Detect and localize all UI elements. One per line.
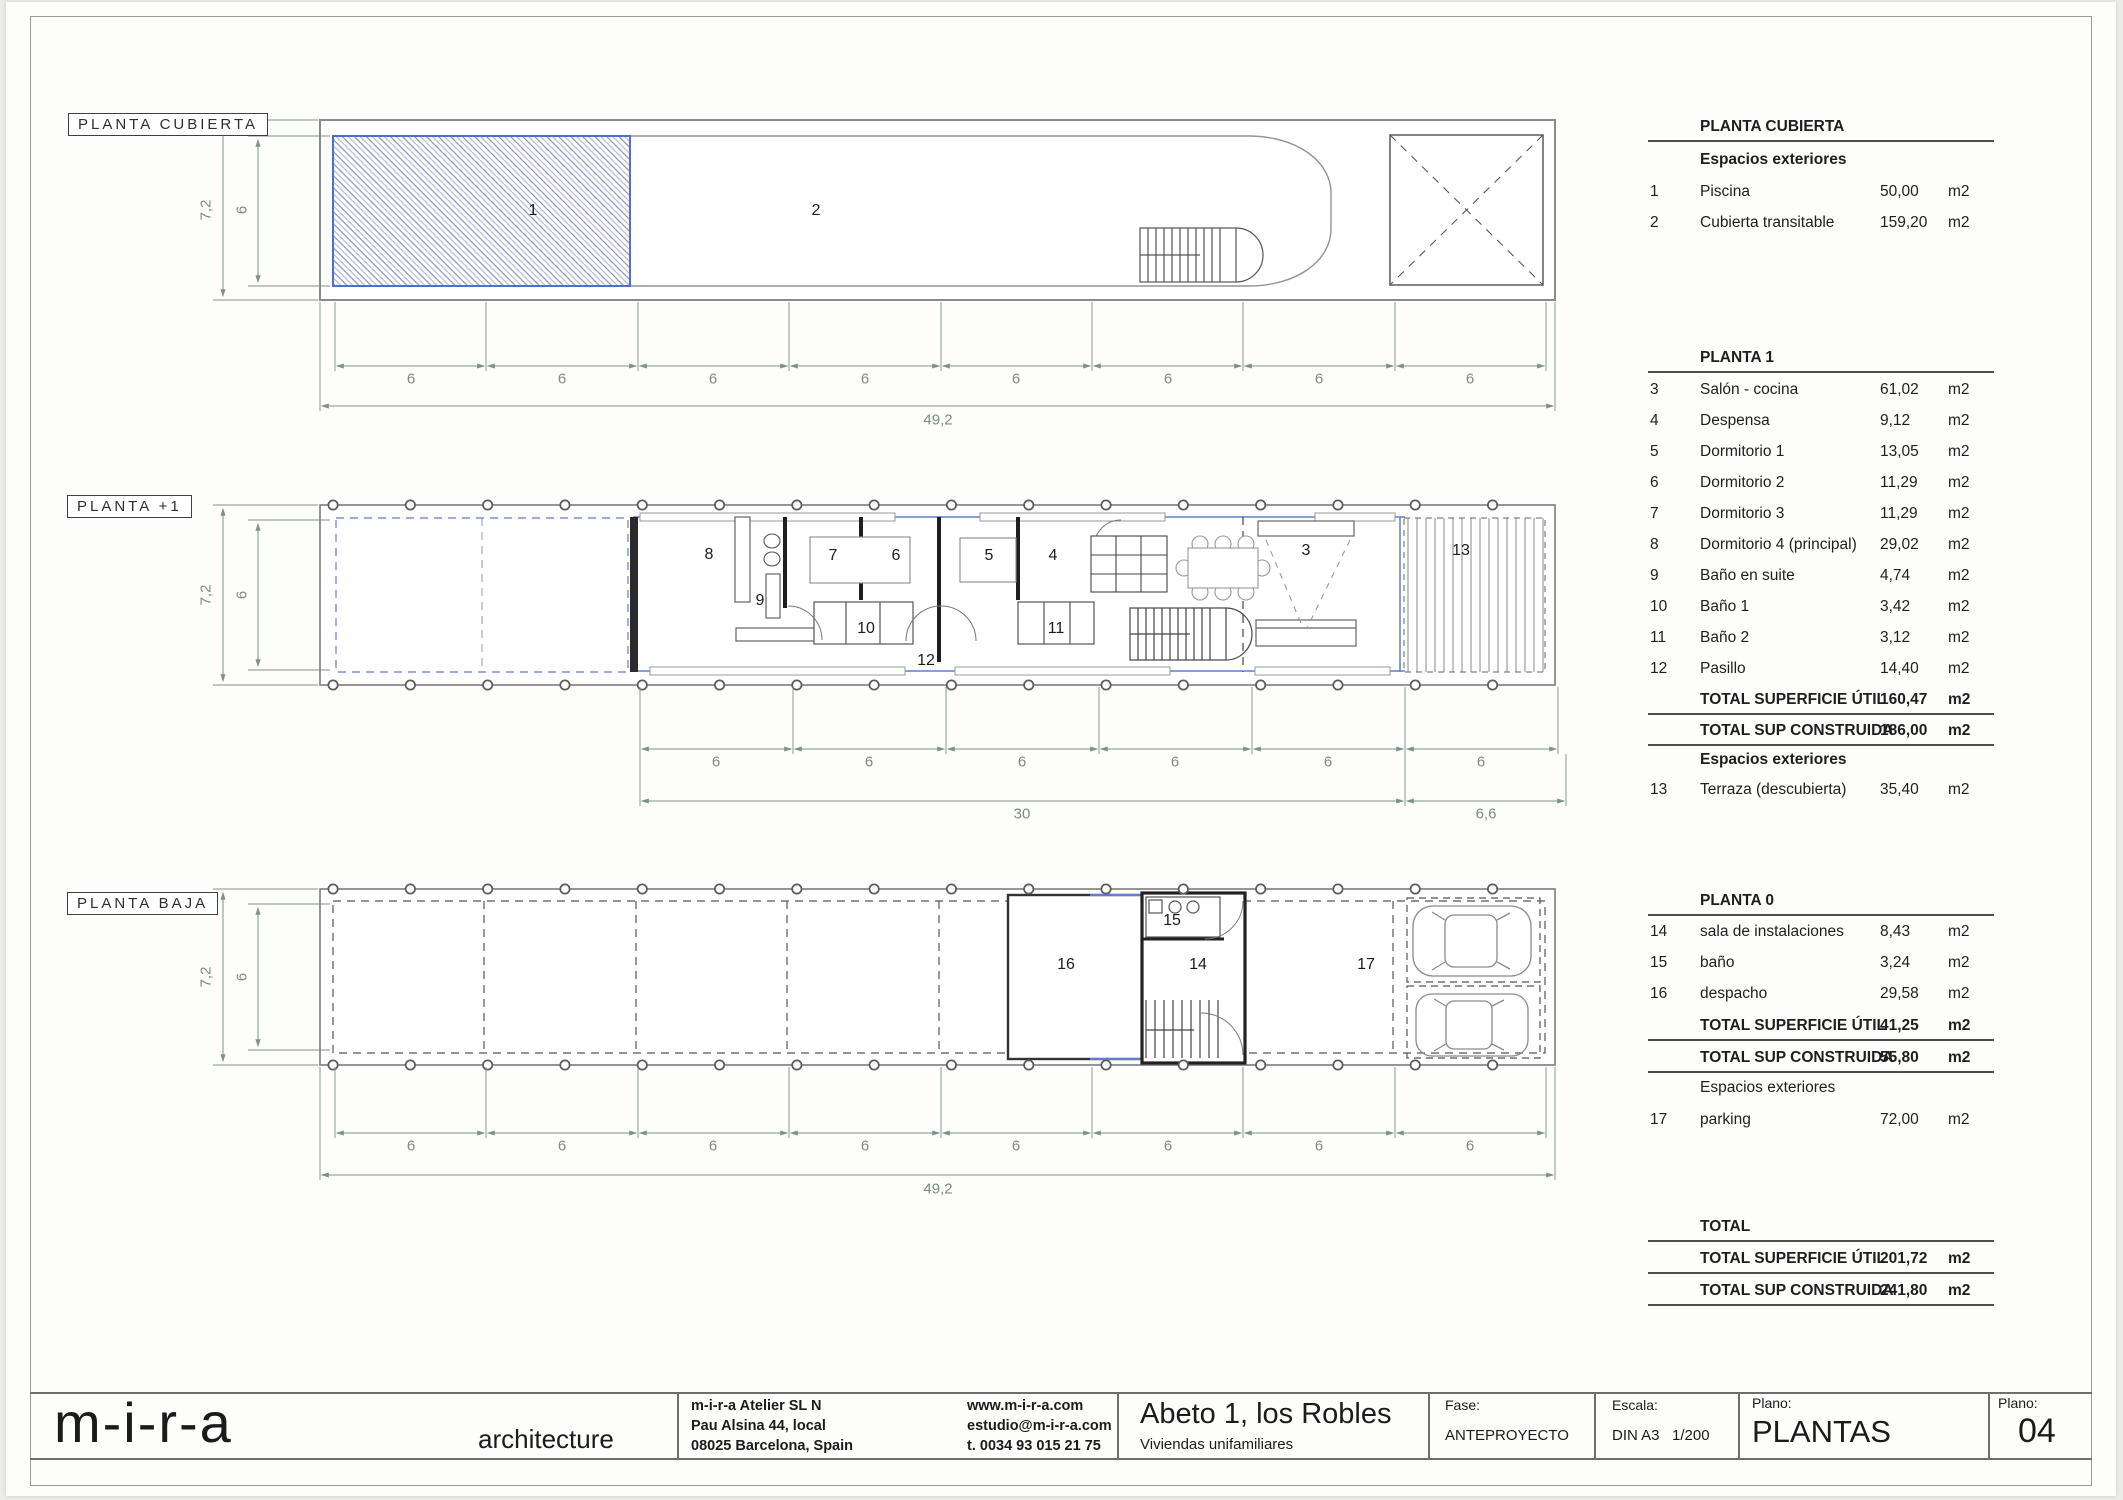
dim-label: 6 [1477,754,1485,771]
total-value: 41,25 [1880,1017,1919,1035]
dim-label: 6 [234,206,251,214]
room-label-pool: 1 [529,202,538,220]
dim-label: 6 [1164,371,1172,388]
total-unit: m2 [1948,1282,1970,1300]
room-label: 7 [829,547,838,565]
dim-label: 6 [1324,754,1332,771]
row-unit: m2 [1948,1111,1970,1129]
row-area: 35,40 [1880,781,1919,799]
table-total-row: TOTAL SUP CONSTRUIDA 241,80 m2 [1648,1282,1994,1306]
row-num: 10 [1650,598,1667,616]
dim-total-label: 6,6 [1476,806,1497,823]
total-label: TOTAL SUP CONSTRUIDA [1700,1282,1893,1300]
total-unit: m2 [1948,1250,1970,1268]
dim-label: 7,2 [198,585,215,606]
room-label: 9 [756,592,765,610]
row-area: 3,42 [1880,598,1910,616]
row-num: 17 [1650,1111,1667,1129]
dim-label: 6 [861,371,869,388]
row-name: Dormitorio 4 (principal) [1700,536,1857,554]
row-num: 6 [1650,474,1659,492]
dim-total-label: 49,2 [923,1181,952,1198]
skylight-cross-icon [1390,135,1543,285]
table-title: PLANTA 1 [1700,349,1774,367]
dim-label: 6 [1171,754,1179,771]
dim-label: 6 [558,1138,566,1155]
row-area: 11,29 [1880,505,1918,523]
escala-label: Escala: [1612,1397,1658,1413]
row-unit: m2 [1948,923,1970,941]
row-unit: m2 [1948,443,1970,461]
row-unit: m2 [1948,381,1970,399]
table-header: PLANTA CUBIERTA [1648,118,1994,142]
titleblock-divider [1117,1392,1119,1458]
row-unit: m2 [1948,598,1970,616]
table-row: 4 Despensa 9,12 m2 [1648,412,1994,434]
table-row: 1 Piscina 50,00 m2 [1648,183,1994,205]
table-row: 16 despacho 29,58 m2 [1648,985,1994,1007]
room-label: 3 [1302,542,1311,560]
total-value: 241,80 [1880,1282,1927,1300]
row-unit: m2 [1948,985,1970,1003]
row-area: 61,02 [1880,381,1919,399]
dim-total-label: 30 [1014,806,1031,823]
dim-label: 6 [1012,371,1020,388]
titleblock-divider [1594,1392,1596,1458]
table-subheader: Espacios exteriores [1648,151,1994,173]
escala-value: DIN A3 1/200 [1612,1427,1710,1444]
total-value: 201,72 [1880,1250,1927,1268]
room-label: 4 [1049,547,1058,565]
dim-total-label: 49,2 [923,412,952,429]
row-area: 9,12 [1880,412,1910,430]
dim-label: 6 [558,371,566,388]
fase-value: ANTEPROYECTO [1445,1427,1569,1444]
table-subheader: Espacios exteriores [1648,751,1994,773]
row-name: Despensa [1700,412,1770,430]
row-area: 72,00 [1880,1111,1919,1129]
firm-logo: m-i-r-a [54,1390,233,1455]
table-row: 17 parking 72,00 m2 [1648,1111,1994,1133]
row-num: 8 [1650,536,1659,554]
dim-label: 6 [1315,371,1323,388]
table-row: 12 Pasillo 14,40 m2 [1648,660,1994,682]
row-name: Baño 1 [1700,598,1749,616]
dim-label: 6 [861,1138,869,1155]
row-num: 5 [1650,443,1659,461]
dim-label: 6 [407,371,415,388]
total-unit: m2 [1948,722,1970,740]
row-area: 3,24 [1880,954,1910,972]
room-label: 10 [857,620,875,638]
row-name: despacho [1700,985,1767,1003]
table-subheader: Espacios exteriores [1648,1079,1994,1101]
row-unit: m2 [1948,954,1970,972]
table-header: PLANTA 1 [1648,349,1994,373]
room-label: 5 [985,547,994,565]
row-num: 4 [1650,412,1659,430]
row-name: sala de instalaciones [1700,923,1844,941]
row-area: 11,29 [1880,474,1918,492]
dim-label: 6 [865,754,873,771]
row-num: 12 [1650,660,1667,678]
firm-tagline: architecture [478,1424,614,1455]
row-num: 14 [1650,923,1667,941]
sheet-number-label: Plano: [1998,1395,2038,1411]
table-row: 8 Dormitorio 4 (principal) 29,02 m2 [1648,536,1994,558]
titleblock-divider [677,1392,679,1458]
firm-contact-line: estudio@m-i-r-a.com [967,1418,1112,1434]
total-label: TOTAL SUPERFICIE ÚTIL [1700,1250,1886,1268]
fase-label: Fase: [1445,1397,1480,1413]
firm-contact-line: t. 0034 93 015 21 75 [967,1438,1101,1454]
dim-label: 6 [1315,1138,1323,1155]
dim-label: 6 [1018,754,1026,771]
row-name: Salón - cocina [1700,381,1798,399]
row-num: 1 [1650,183,1659,201]
row-area: 50,00 [1880,183,1919,201]
total-value: 186,00 [1880,722,1927,740]
row-area: 29,58 [1880,985,1919,1003]
row-area: 159,20 [1880,214,1927,232]
room-label: 8 [705,546,714,564]
table-row: 15 baño 3,24 m2 [1648,954,1994,976]
sheet-number: 04 [2018,1412,2056,1451]
table-row: 6 Dormitorio 2 11,29 m2 [1648,474,1994,496]
dim-label: 6 [407,1138,415,1155]
titleblock-divider [1428,1392,1430,1458]
table-subtitle: Espacios exteriores [1700,1079,1835,1097]
project-title: Abeto 1, los Robles [1140,1398,1391,1431]
room-label: 14 [1189,956,1207,974]
dim-label: 6 [1466,371,1474,388]
plan-tag-baja: PLANTA BAJA [67,892,218,915]
plano-value: PLANTAS [1752,1414,1891,1450]
kitchen-unit-icon [1091,536,1167,592]
row-area: 4,74 [1880,567,1910,585]
table-title: PLANTA CUBIERTA [1700,118,1844,136]
dim-label: 7,2 [198,967,215,988]
titleblock-divider [1988,1392,1990,1458]
table-row: 3 Salón - cocina 61,02 m2 [1648,381,1994,403]
table-total-row: TOTAL SUP CONSTRUIDA 55,80 m2 [1648,1049,1994,1073]
room-label: 15 [1163,912,1181,930]
row-unit: m2 [1948,660,1970,678]
project-subtitle: Viviendas unifamiliares [1140,1436,1293,1453]
row-num: 3 [1650,381,1659,399]
room-label: 16 [1057,956,1075,974]
row-num: 15 [1650,954,1667,972]
plano-label: Plano: [1752,1395,1792,1411]
dim-label: 6 [709,371,717,388]
firm-contact-line: www.m-i-r-a.com [967,1398,1083,1414]
total-value: 160,47 [1880,691,1927,709]
row-name: baño [1700,954,1734,972]
row-unit: m2 [1948,412,1970,430]
row-num: 2 [1650,214,1659,232]
row-unit: m2 [1948,505,1970,523]
firm-address-line: Pau Alsina 44, local [691,1418,826,1434]
firm-address-line: 08025 Barcelona, Spain [691,1438,853,1454]
room-label-roof: 2 [812,202,821,220]
row-name: Piscina [1700,183,1750,201]
row-name: Dormitorio 2 [1700,474,1784,492]
row-name: Baño en suite [1700,567,1795,585]
row-unit: m2 [1948,214,1970,232]
table-row: 10 Baño 1 3,42 m2 [1648,598,1994,620]
row-area: 14,40 [1880,660,1919,678]
dim-label: 6 [1466,1138,1474,1155]
table-subtitle: Espacios exteriores [1700,151,1846,169]
table-header: PLANTA 0 [1648,892,1994,916]
row-unit: m2 [1948,629,1970,647]
row-area: 8,43 [1880,923,1910,941]
table-subtitle: Espacios exteriores [1700,751,1846,769]
row-num: 9 [1650,567,1659,585]
plan-baja-linework [200,875,1600,1205]
row-name: parking [1700,1111,1751,1129]
room-label: 13 [1452,542,1470,560]
total-unit: m2 [1948,1049,1970,1067]
dim-label: 7,2 [198,200,215,221]
total-label: TOTAL SUPERFICIE ÚTIL [1700,1017,1886,1035]
dim-label: 6 [234,973,251,981]
row-area: 29,02 [1880,536,1919,554]
room-label: 17 [1357,956,1375,974]
area-tables: PLANTA CUBIERTA Espacios exteriores 1 Pi… [1648,0,1994,1400]
plan-tag-mas1: PLANTA +1 [67,495,192,518]
row-name: Dormitorio 3 [1700,505,1784,523]
dim-label: 6 [712,754,720,771]
total-label: TOTAL SUPERFICIE ÚTIL [1700,691,1886,709]
table-row: 5 Dormitorio 1 13,05 m2 [1648,443,1994,465]
total-unit: m2 [1948,691,1970,709]
total-unit: m2 [1948,1017,1970,1035]
row-num: 13 [1650,781,1667,799]
row-name: Dormitorio 1 [1700,443,1784,461]
table-total-row: TOTAL SUPERFICIE ÚTIL 201,72 m2 [1648,1250,1994,1274]
row-unit: m2 [1948,567,1970,585]
table-total-row: TOTAL SUPERFICIE ÚTIL 41,25 m2 [1648,1017,1994,1041]
titleblock-top-line [30,1392,2092,1394]
dim-label: 6 [1012,1138,1020,1155]
row-area: 13,05 [1880,443,1919,461]
table-row: 14 sala de instalaciones 8,43 m2 [1648,923,1994,945]
table-row: 7 Dormitorio 3 11,29 m2 [1648,505,1994,527]
dim-label: 6 [234,591,251,599]
plan-tag-cubierta: PLANTA CUBIERTA [68,113,268,136]
row-unit: m2 [1948,183,1970,201]
row-unit: m2 [1948,474,1970,492]
table-total-row: TOTAL SUPERFICIE ÚTIL 160,47 m2 [1648,691,1994,715]
row-name: Pasillo [1700,660,1746,678]
row-name: Baño 2 [1700,629,1749,647]
row-num: 7 [1650,505,1659,523]
terrace-decking [1404,518,1545,672]
titleblock-bottom-line [30,1458,2092,1460]
table-title: TOTAL [1700,1218,1750,1236]
table-title: PLANTA 0 [1700,892,1774,910]
total-value: 55,80 [1880,1049,1919,1067]
row-num: 11 [1650,629,1666,647]
table-row: 13 Terraza (descubierta) 35,40 m2 [1648,781,1994,803]
titleblock-divider [1738,1392,1740,1458]
row-name: Cubierta transitable [1700,214,1834,232]
firm-address-line: m-i-r-a Atelier SL N [691,1398,822,1414]
row-num: 16 [1650,985,1667,1003]
room-label: 11 [1048,620,1065,638]
total-label: TOTAL SUP CONSTRUIDA [1700,722,1893,740]
row-name: Terraza (descubierta) [1700,781,1846,799]
dim-label: 6 [1164,1138,1172,1155]
table-row: 11 Baño 2 3,12 m2 [1648,629,1994,651]
dim-label: 6 [709,1138,717,1155]
table-total-row: TOTAL SUP CONSTRUIDA 186,00 m2 [1648,722,1994,746]
total-label: TOTAL SUP CONSTRUIDA [1700,1049,1893,1067]
pool-hatch [333,136,630,286]
row-area: 3,12 [1880,629,1910,647]
table-row: 2 Cubierta transitable 159,20 m2 [1648,214,1994,236]
table-row: 9 Baño en suite 4,74 m2 [1648,567,1994,589]
table-header: TOTAL [1648,1218,1994,1242]
room-label: 6 [892,547,901,565]
plan-mas1-linework [200,490,1600,835]
row-unit: m2 [1948,536,1970,554]
room-label: 12 [917,652,935,670]
row-unit: m2 [1948,781,1970,799]
